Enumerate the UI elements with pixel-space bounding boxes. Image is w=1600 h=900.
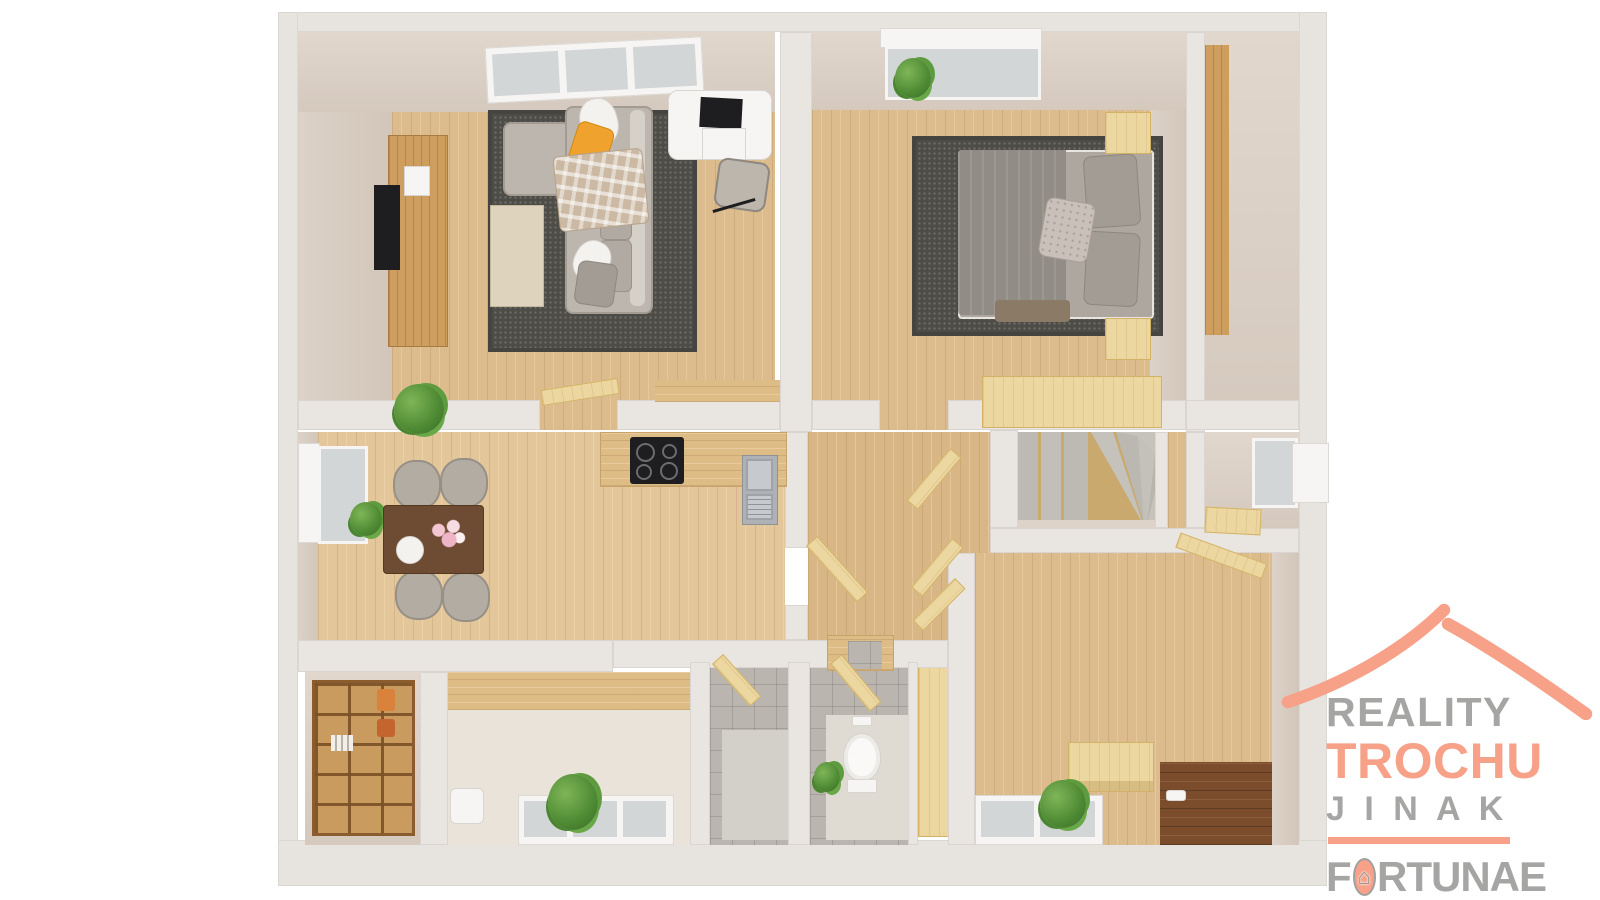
- nightstand-bottom: [1105, 318, 1151, 360]
- sink-drainer: [746, 494, 773, 520]
- wall-closet-landing: [1186, 432, 1205, 528]
- wall-kitchen-hall-upper: [785, 432, 808, 548]
- landing-window-frame: [1292, 443, 1329, 503]
- brand-divider: [1328, 837, 1510, 844]
- kitchen-window-frame: [298, 443, 320, 543]
- brand-text-block: REALITY TROCHU J I N A K F ⌂ RTUNAE s.r.…: [1326, 692, 1546, 900]
- wall-bedroom-closet: [1186, 32, 1205, 432]
- bedroom-window-frame: [880, 28, 1042, 48]
- floor-plan-poster: REALITY TROCHU J I N A K F ⌂ RTUNAE s.r.…: [0, 0, 1600, 900]
- stair-side-wood-strip: [1168, 432, 1186, 528]
- mini-steps-carpet: [848, 641, 882, 669]
- nightstand-top: [1105, 112, 1151, 154]
- burner-4: [660, 462, 678, 480]
- wall-horizontal-a2: [617, 400, 780, 430]
- bathroom-top-wood-band: [448, 672, 690, 710]
- outer-wall-bottom: [278, 840, 1327, 886]
- laptop: [699, 97, 743, 129]
- flower-vase: [426, 515, 468, 553]
- wall-storage-bath: [420, 672, 448, 845]
- bathroom-window-mullion-2: [617, 800, 623, 838]
- induction-cooktop: [630, 437, 684, 484]
- bathroom-washbasin: [450, 788, 484, 824]
- dining-chair-3: [395, 570, 443, 620]
- house-in-o-icon: ⌂: [1353, 858, 1376, 896]
- dining-chair-1: [393, 460, 441, 510]
- fortunae-letters-rest: RTUNAE: [1377, 856, 1546, 898]
- dining-chair-4: [442, 572, 490, 622]
- wall-horizontal-a5: [1186, 400, 1299, 430]
- desk-chair: [713, 157, 771, 214]
- bed-throw: [995, 300, 1070, 322]
- wall-wc-right: [908, 662, 918, 845]
- winder-stairs-icon: [1018, 432, 1155, 528]
- burner-2: [662, 444, 677, 459]
- bed-accent-pillow: [1037, 196, 1097, 264]
- brand-line-jinak: J I N A K: [1326, 792, 1546, 826]
- plaid-blanket: [552, 148, 649, 233]
- paper-sheet: [702, 128, 746, 160]
- wall-living-bedroom: [780, 32, 812, 432]
- pass-through-counter: [655, 380, 780, 402]
- tall-door-panel-strip: [918, 662, 950, 837]
- wall-kitchen-hall-lower: [785, 605, 808, 640]
- plate: [396, 536, 424, 564]
- bathroom-plant: [548, 774, 598, 830]
- closet-tall-cabinet: [1205, 45, 1229, 335]
- dining-chair-2: [440, 458, 488, 508]
- wall-bath-shower: [690, 662, 710, 845]
- agency-logo: REALITY TROCHU J I N A K F ⌂ RTUNAE s.r.…: [1280, 588, 1600, 898]
- fortunae-letter-f: F: [1326, 856, 1352, 898]
- living-room-left-wall-face: [298, 112, 392, 430]
- outer-wall-top: [278, 12, 1327, 32]
- entry-small-object: [1166, 790, 1186, 801]
- wall-above-wet-rooms: [613, 640, 948, 668]
- staircase: [1018, 432, 1155, 528]
- house-glyph: ⌂: [1358, 866, 1371, 888]
- bedroom-window-plant: [895, 58, 931, 98]
- entry-dark-wood-floor: [1160, 762, 1272, 845]
- fuzzy-pillow: [573, 259, 619, 308]
- storage-shelving-unit: [312, 680, 415, 836]
- outer-wall-left: [278, 12, 298, 886]
- tv: [374, 185, 400, 270]
- shower-room-floor: [722, 730, 788, 840]
- sink-basin: [746, 459, 773, 491]
- burner-3: [636, 464, 652, 480]
- brand-line-trochu: TROCHU: [1326, 736, 1546, 786]
- shelf-books: [331, 735, 353, 751]
- toilet: [843, 733, 881, 781]
- shelf-item-orange-2: [377, 719, 395, 737]
- burner-1: [636, 443, 655, 462]
- landing-wood-shelf: [1204, 507, 1261, 536]
- thermostat: [404, 166, 430, 196]
- wc-plant: [814, 762, 840, 792]
- brand-fortunae-row: F ⌂ RTUNAE: [1326, 856, 1546, 898]
- stair-side-wall: [1155, 432, 1168, 528]
- entry-storage-chest: [1068, 742, 1154, 792]
- wall-horizontal-a3: [812, 400, 880, 430]
- entry-plant: [1040, 780, 1086, 828]
- bed-pillow-bottom: [1083, 231, 1141, 308]
- wall-shower-wc: [788, 662, 810, 845]
- shelf-item-orange-1: [377, 689, 395, 711]
- wardrobe: [982, 376, 1162, 428]
- skylight-glass: [492, 44, 697, 97]
- brand-line-reality: REALITY: [1326, 692, 1546, 733]
- coffee-table: [490, 205, 544, 307]
- wall-hall-stairs: [990, 430, 1018, 528]
- toilet-tank: [847, 779, 877, 793]
- living-room-plant: [394, 384, 444, 434]
- toilet-flush-plate: [852, 716, 872, 726]
- kitchen-sink: [742, 455, 778, 525]
- wall-below-kitchen: [298, 640, 613, 672]
- kitchen-sill-plant: [350, 502, 382, 536]
